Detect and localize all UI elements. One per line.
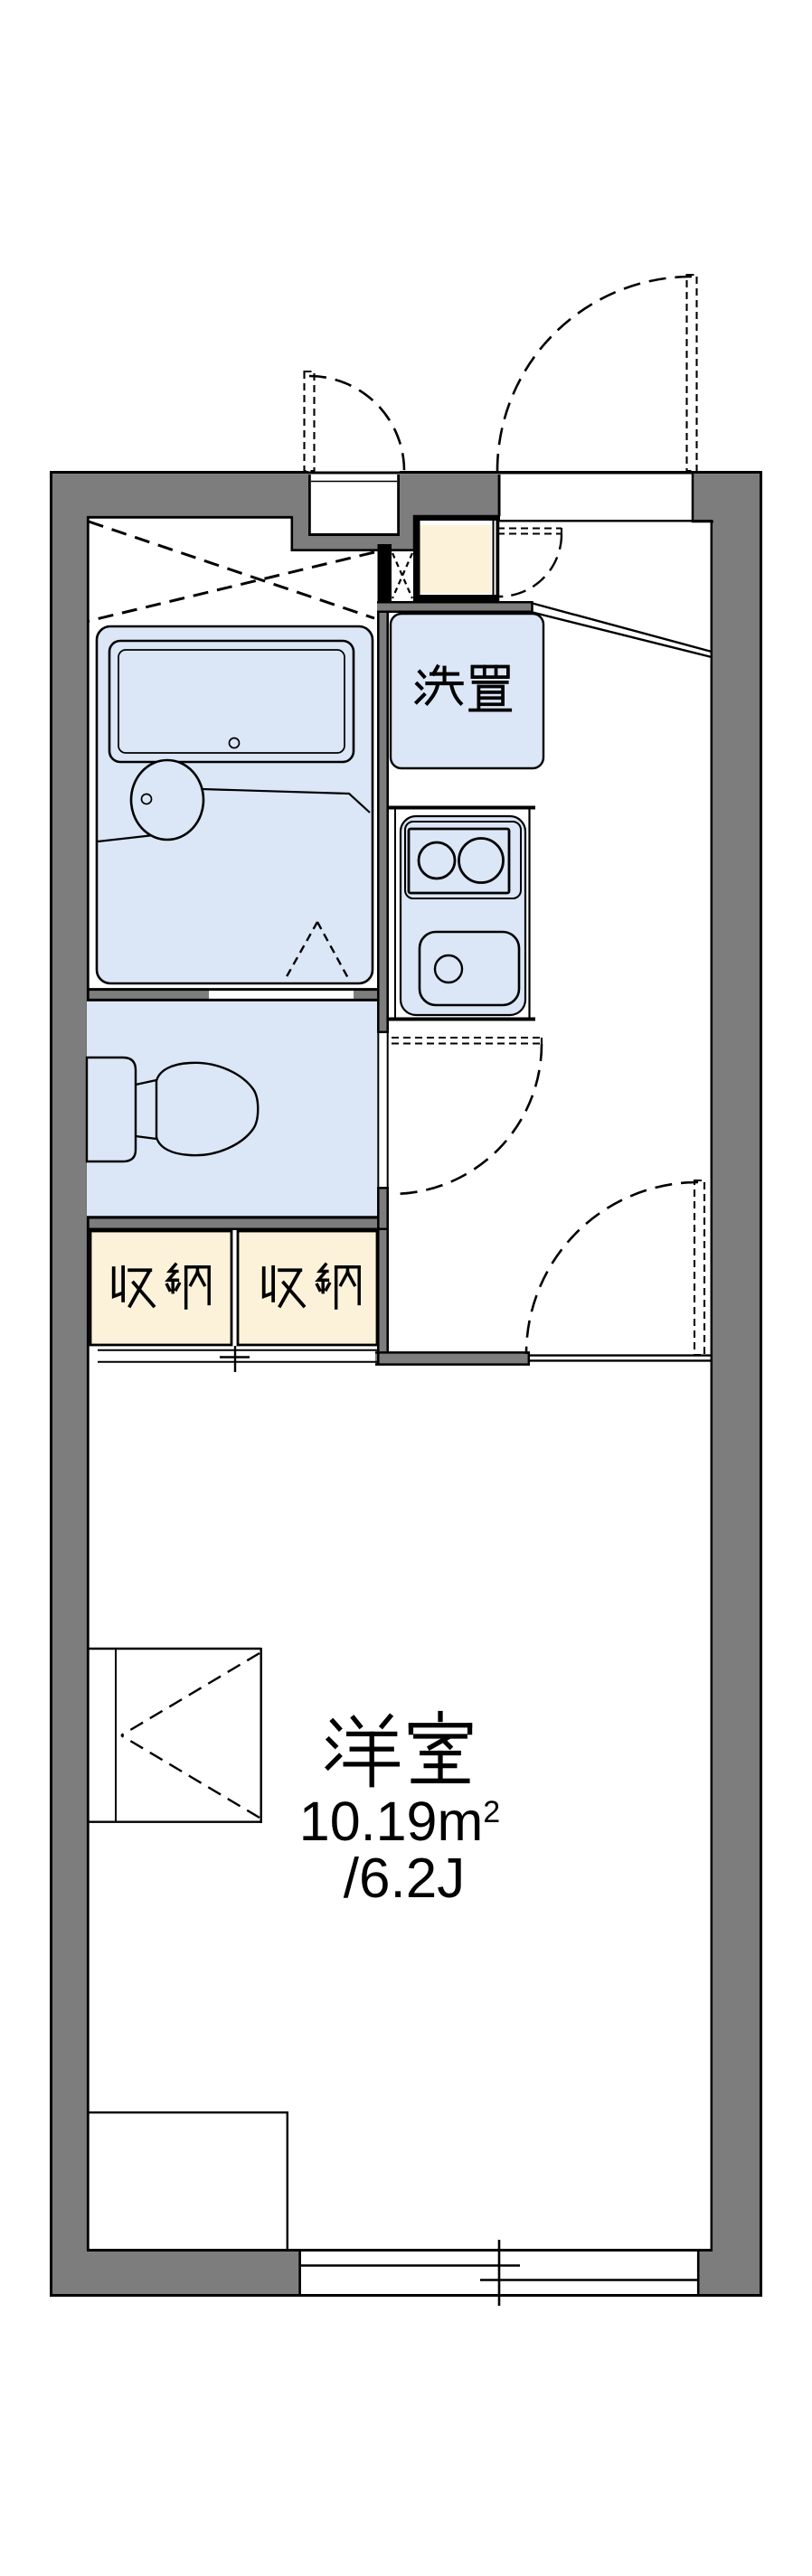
- svg-text:10.19m2: 10.19m2: [299, 1791, 500, 1852]
- svg-text:/6.2J: /6.2J: [344, 1847, 465, 1910]
